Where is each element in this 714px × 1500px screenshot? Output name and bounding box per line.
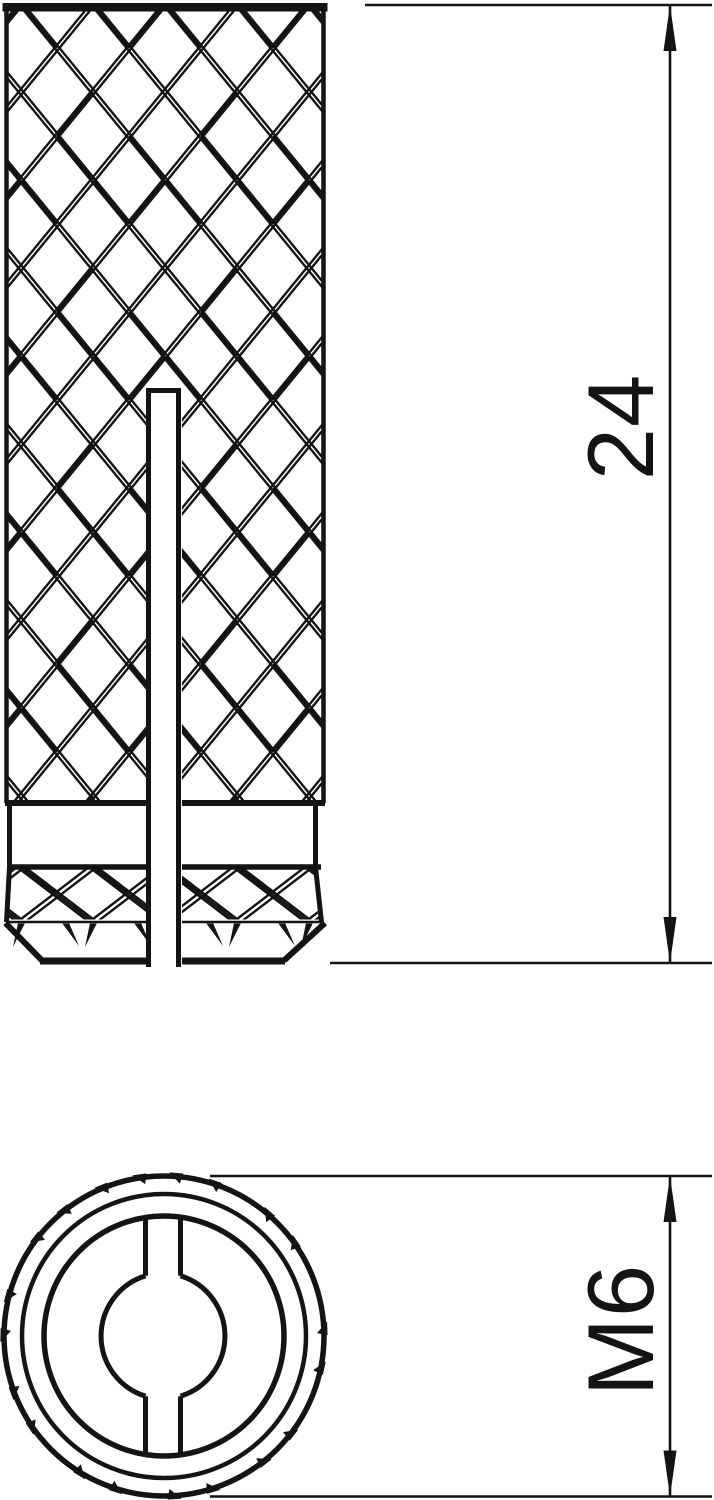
dimension-label-thread: M6 xyxy=(568,1264,673,1397)
outer-knurled-circle xyxy=(4,1176,324,1496)
arrowhead-down-icon xyxy=(664,1451,677,1497)
arrowhead-up-icon xyxy=(664,1176,677,1222)
body-top-edge xyxy=(3,3,328,12)
dimension-overall-length: 24 xyxy=(330,5,712,963)
anchor-plan-view xyxy=(0,1172,327,1499)
ring-left-edge xyxy=(7,867,10,922)
technical-drawing: 24 xyxy=(0,0,714,1500)
arrowhead-up-icon xyxy=(664,5,677,51)
dimension-label-length: 24 xyxy=(568,374,673,481)
anchor-side-view xyxy=(3,3,328,968)
shoulder-circle xyxy=(22,1194,306,1478)
bore-and-slot-outline xyxy=(101,1219,225,1453)
arrowhead-down-icon xyxy=(664,917,677,963)
drawing-canvas: 24 xyxy=(0,0,714,1500)
core-circle xyxy=(44,1216,284,1456)
